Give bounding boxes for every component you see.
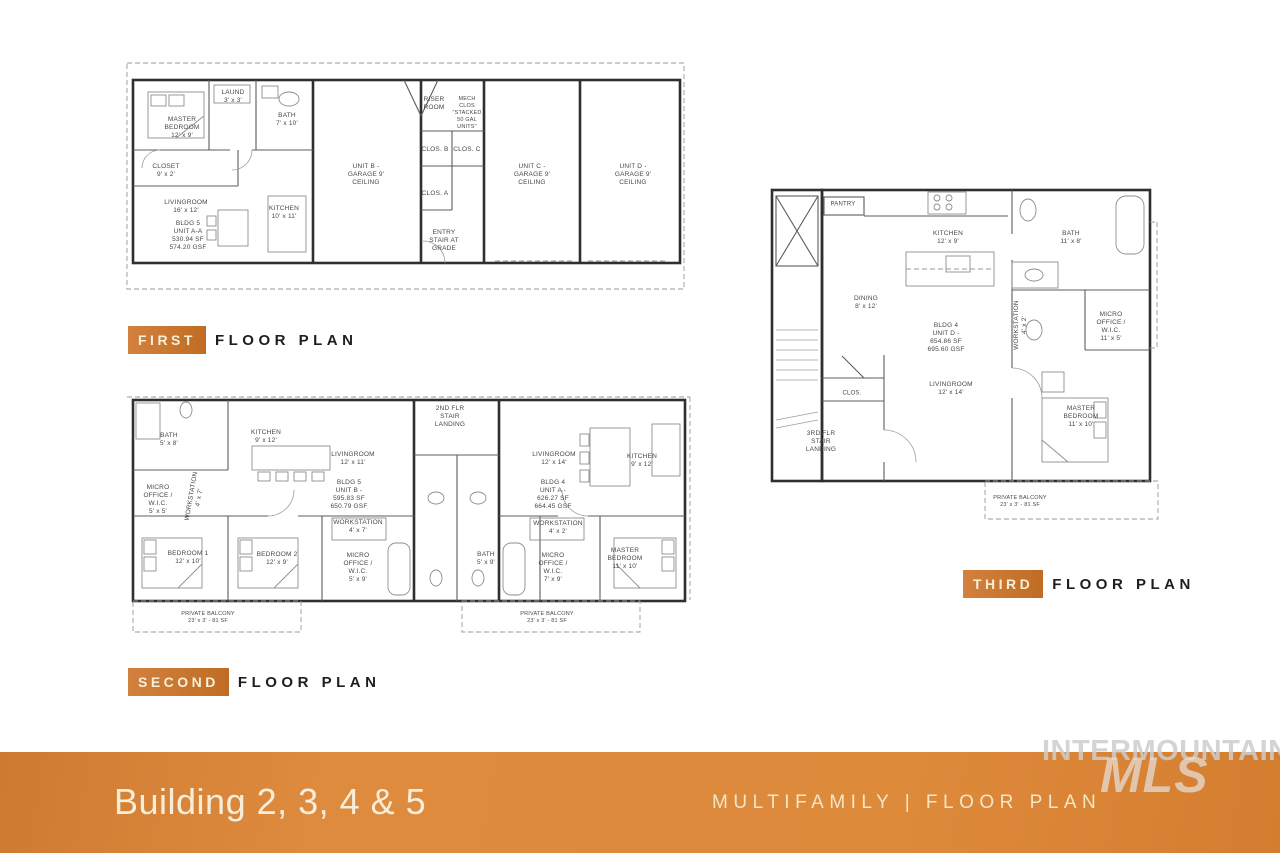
first-floor-tag: FIRST bbox=[128, 326, 206, 354]
banner-subtitle: MULTIFAMILY | FLOOR PLAN bbox=[712, 792, 1101, 814]
third-floor-title: FLOOR PLAN bbox=[1052, 576, 1195, 593]
first-floor-plan-heading: FIRST FLOOR PLAN bbox=[128, 325, 357, 355]
second-floor-tag: SECOND bbox=[128, 668, 229, 696]
first-floor-title: FLOOR PLAN bbox=[215, 332, 358, 349]
second-floor-plan-heading: SECOND FLOOR PLAN bbox=[128, 667, 380, 697]
flyer-page: MASTER BEDROOM 12' x 9'LAUND 3' x 3'BATH… bbox=[0, 0, 1280, 853]
bottom-banner: Building 2, 3, 4 & 5 MULTIFAMILY | FLOOR… bbox=[0, 752, 1280, 853]
third-floor-plan-drawing bbox=[772, 190, 1158, 519]
third-floor-plan-heading: THIRD FLOOR PLAN bbox=[963, 569, 1195, 599]
second-floor-plan-drawing bbox=[127, 397, 690, 632]
first-floor-plan-drawing bbox=[127, 63, 684, 289]
banner-title: Building 2, 3, 4 & 5 bbox=[114, 781, 426, 823]
second-floor-title: FLOOR PLAN bbox=[238, 674, 381, 691]
floor-plan-drawings bbox=[0, 0, 1280, 853]
third-floor-tag: THIRD bbox=[963, 570, 1043, 598]
